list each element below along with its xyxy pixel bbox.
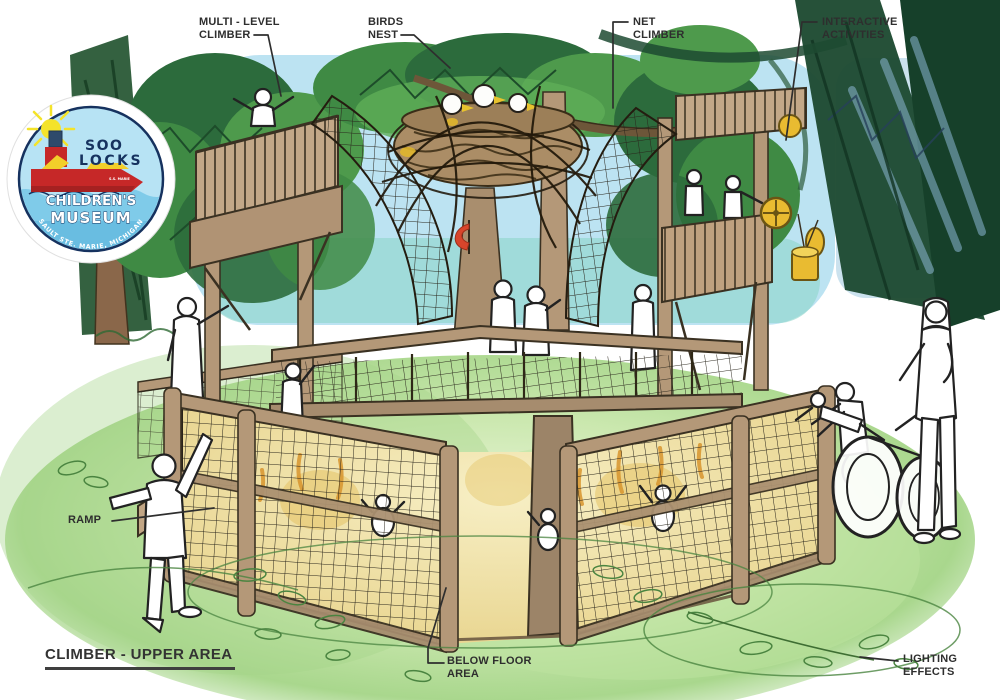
logo-name-line4: MUSEUM	[50, 209, 131, 227]
logo-name-line3: CHILDREN'S	[46, 193, 137, 209]
label-line: RAMP	[68, 514, 101, 527]
ship-name-label: S.S. MARIE	[109, 177, 131, 181]
logo-name-line1: SOO	[85, 138, 123, 154]
label-line: MULTI - LEVEL	[199, 16, 280, 29]
label-line: AREA	[447, 668, 532, 681]
concept-rendering-page: MULTI - LEVEL CLIMBER BIRDS NEST NET CLI…	[0, 0, 1000, 700]
logo-name-line2: LOCKS	[79, 153, 143, 169]
label-lighting-effects: LIGHTING EFFECTS	[903, 653, 957, 678]
label-line: NET	[633, 16, 685, 29]
label-line: NEST	[368, 29, 403, 42]
label-birds-nest: BIRDS NEST	[368, 16, 403, 41]
label-line: LIGHTING	[903, 653, 957, 666]
museum-logo: S.S. MARIE SOO LOCKS CHILDREN'S MUSEUM S…	[5, 93, 177, 265]
label-multi-level-climber: MULTI - LEVEL CLIMBER	[199, 16, 280, 41]
label-interactive-activities: INTERACTIVE ACTIVITIES	[822, 16, 898, 41]
drawing-title: CLIMBER - UPPER AREA	[45, 646, 235, 670]
drawing-title-text: CLIMBER - UPPER AREA	[45, 646, 232, 663]
label-line: BIRDS	[368, 16, 403, 29]
label-line: INTERACTIVE	[822, 16, 898, 29]
label-line: CLIMBER	[199, 29, 280, 42]
label-line: EFFECTS	[903, 666, 957, 679]
title-underline	[45, 667, 235, 670]
label-ramp: RAMP	[68, 514, 101, 527]
label-line: CLIMBER	[633, 29, 685, 42]
label-below-floor-area: BELOW FLOOR AREA	[447, 655, 532, 680]
label-line: BELOW FLOOR	[447, 655, 532, 668]
label-net-climber: NET CLIMBER	[633, 16, 685, 41]
interactive-wheel-icon	[761, 198, 791, 228]
label-line: ACTIVITIES	[822, 29, 898, 42]
